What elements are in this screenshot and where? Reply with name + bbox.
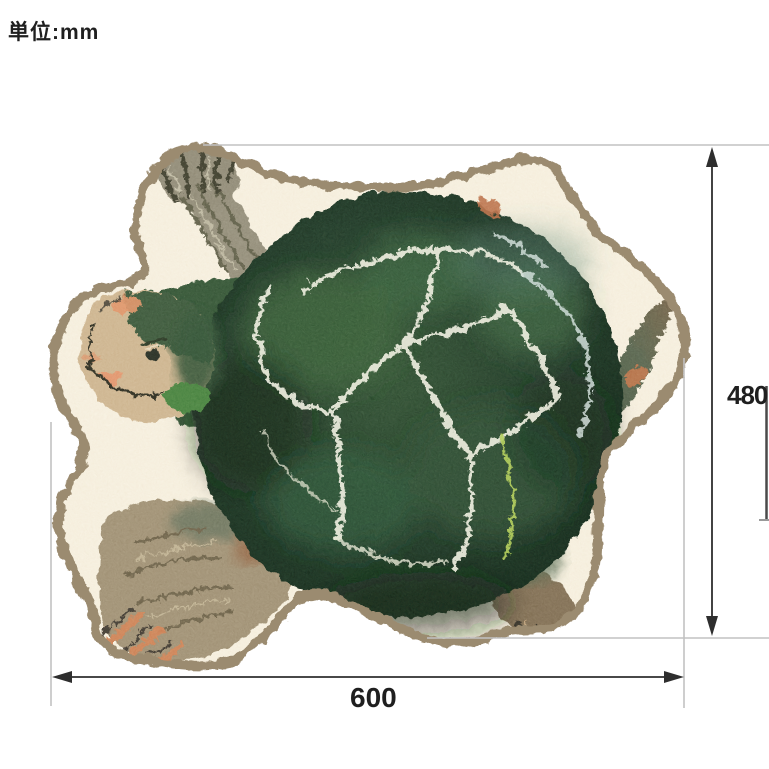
arrowhead-up-icon [706, 147, 718, 167]
unit-label: 単位:mm [8, 22, 99, 43]
product-dimension-diagram: 単位:mm 480 600 [0, 0, 769, 769]
dimension-label-width: 600 [350, 684, 397, 712]
dimension-label-height: 480 [727, 382, 767, 408]
diagram-canvas [0, 0, 769, 769]
dimension-line-height [706, 147, 718, 636]
arrowhead-down-icon [706, 616, 718, 636]
arrowhead-left-icon [52, 671, 72, 683]
tuft-texture-overlay [40, 130, 700, 675]
turtle-rug-illustration [40, 130, 700, 675]
arrowhead-right-icon [664, 671, 684, 683]
